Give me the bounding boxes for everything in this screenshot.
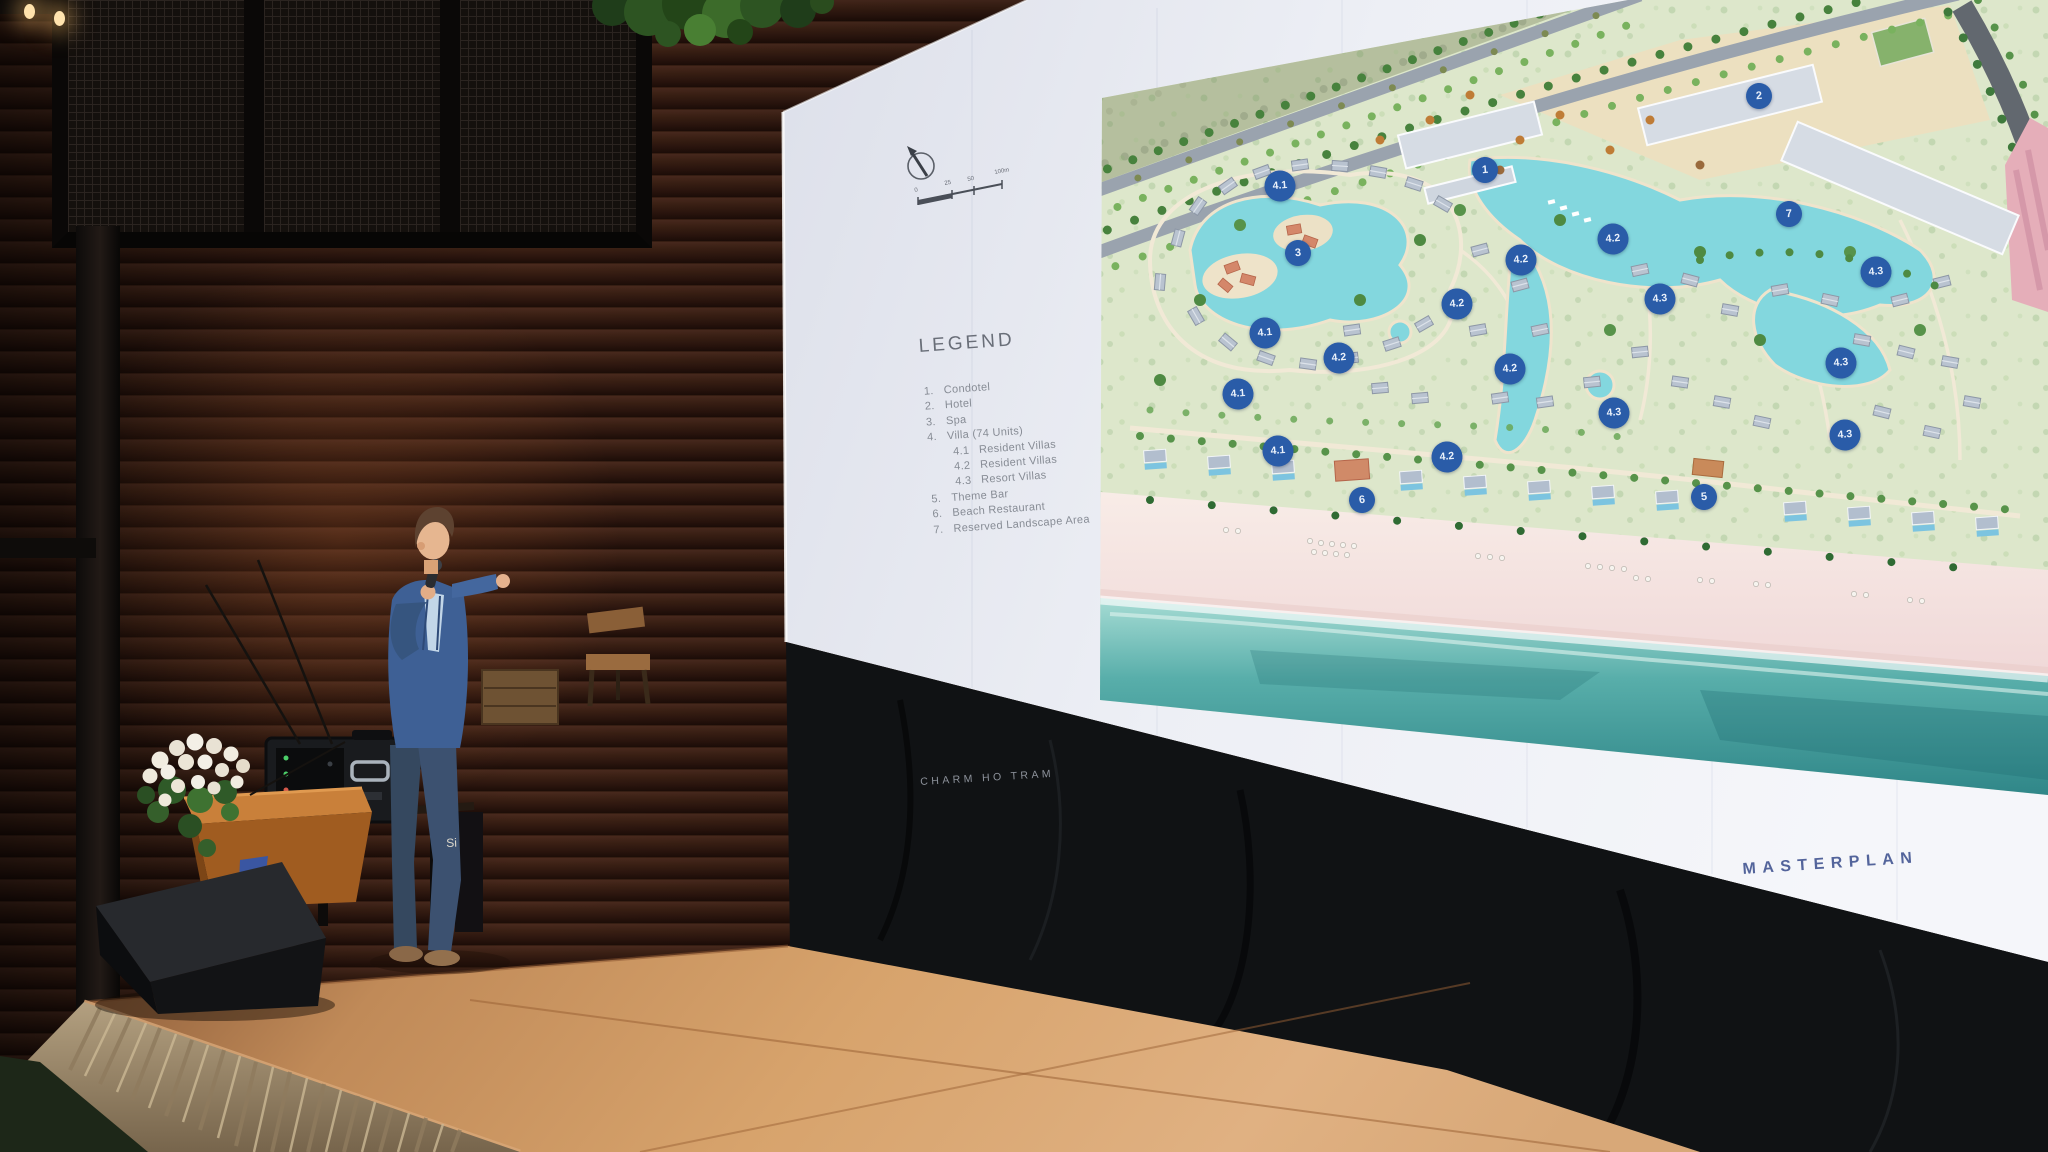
wooden-chair: [586, 607, 650, 706]
wooden-crate: [482, 670, 558, 724]
partial-signage-text: Si: [446, 836, 457, 850]
scale-label: 50: [967, 176, 975, 183]
slide-legend: LEGEND 1.Condotel 2.Hotel 3.Spa 4.Villa …: [918, 325, 1090, 539]
legend-list: 1.Condotel 2.Hotel 3.Spa 4.Villa (74 Uni…: [923, 374, 1090, 539]
stage-furniture: [95, 560, 650, 1021]
hanging-foliage: [592, 0, 834, 47]
conference-stage-photo: LEGEND 1.Condotel 2.Hotel 3.Spa 4.Villa …: [0, 0, 2048, 1152]
scene-art: [0, 0, 2048, 1152]
masterplan-map: [1080, 0, 2048, 820]
scale-label: 25: [944, 180, 952, 187]
